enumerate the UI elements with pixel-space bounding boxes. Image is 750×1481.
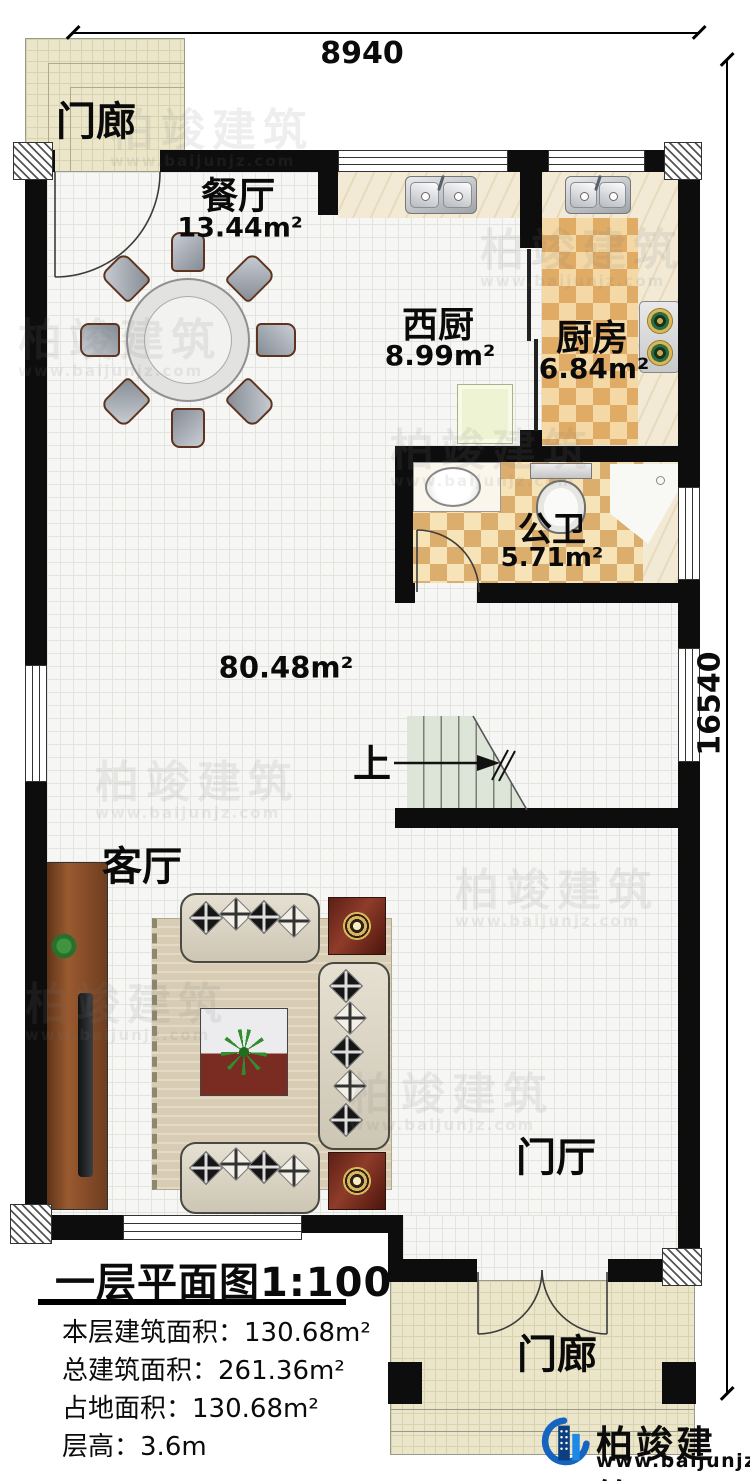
window — [548, 150, 645, 172]
tv-screen — [78, 993, 93, 1177]
wall — [395, 446, 413, 600]
room-label-dining: 餐厅 — [201, 178, 275, 215]
burner-icon — [646, 307, 674, 335]
info-value: 130.68m² — [244, 1318, 371, 1348]
room-label-foyer: 门厅 — [516, 1138, 596, 1178]
room-label-porch-top: 门廊 — [56, 102, 136, 142]
wall — [390, 1259, 477, 1282]
info-row: 层高：3.6m — [62, 1428, 371, 1466]
wall — [678, 762, 700, 1283]
info-value: 130.68m² — [192, 1394, 319, 1424]
window — [25, 665, 47, 782]
info-rows: 本层建筑面积：130.68m² 总建筑面积：261.36m² 占地面积：130.… — [62, 1314, 371, 1466]
porch-post — [388, 1362, 422, 1404]
column-hatch — [13, 142, 53, 180]
west-kitchen-cabinet — [457, 384, 513, 444]
info-label: 总建筑面积： — [62, 1356, 218, 1386]
wall — [395, 808, 678, 828]
window — [678, 487, 700, 580]
room-area-west-kitchen: 8.99m² — [385, 342, 496, 370]
side-table — [328, 897, 386, 955]
wall — [395, 583, 415, 603]
wall — [477, 583, 678, 603]
porch-post — [662, 1362, 696, 1404]
tv-cabinet — [46, 862, 108, 1210]
column-hatch — [664, 142, 702, 180]
wall — [520, 150, 542, 248]
room-area-kitchen: 6.84m² — [539, 355, 650, 383]
side-table — [328, 1152, 386, 1210]
info-value: 3.6m — [140, 1432, 207, 1462]
window — [338, 150, 508, 172]
dining-table — [126, 278, 250, 402]
room-area-great-room: 80.48m² — [219, 654, 354, 683]
toilet-tank — [530, 463, 592, 479]
dimension-line-top — [72, 32, 700, 34]
info-row: 总建筑面积：261.36m² — [62, 1352, 371, 1390]
column-hatch — [662, 1248, 702, 1286]
info-label: 本层建筑面积： — [62, 1318, 244, 1348]
dimension-height: 16540 — [693, 639, 728, 769]
title-divider — [38, 1299, 346, 1305]
wall — [678, 150, 700, 487]
floor-plan: 柏竣建筑www.baijunjz.com 柏竣建筑www.baijunjz.co… — [0, 0, 750, 1481]
info-label: 层高： — [62, 1432, 140, 1462]
wall — [318, 150, 338, 215]
west-kitchen-sink — [405, 176, 477, 214]
info-value: 261.36m² — [218, 1356, 345, 1386]
room-label-living: 客厅 — [102, 847, 182, 887]
room-label-porch-bottom: 门廊 — [517, 1335, 597, 1375]
kitchen-sink — [565, 176, 631, 214]
info-row: 本层建筑面积：130.68m² — [62, 1314, 371, 1352]
info-row: 占地面积：130.68m² — [62, 1390, 371, 1428]
porch-step-line — [391, 1409, 694, 1410]
wall — [160, 150, 318, 172]
wall — [25, 150, 47, 665]
room-label-bathroom: 公卫 — [518, 513, 586, 547]
window — [123, 1215, 302, 1240]
brand-logo-icon — [538, 1414, 590, 1472]
brand-url: www.baijunjz.com — [596, 1450, 750, 1472]
table-plant — [221, 1029, 267, 1075]
bathroom-sink — [425, 467, 481, 507]
column-hatch — [10, 1204, 52, 1244]
room-area-dining: 13.44m² — [177, 215, 302, 242]
info-label: 占地面积： — [62, 1394, 192, 1424]
cabinet-plant — [50, 930, 78, 962]
room-area-bathroom: 5.71m² — [501, 545, 604, 571]
stairs-up-label: 上 — [353, 745, 391, 783]
dimension-width: 8940 — [302, 36, 422, 71]
wall — [395, 446, 678, 462]
wall — [25, 782, 47, 1240]
shower-drain-icon — [656, 476, 665, 485]
coffee-table — [200, 1008, 288, 1096]
burner-icon — [646, 339, 674, 367]
